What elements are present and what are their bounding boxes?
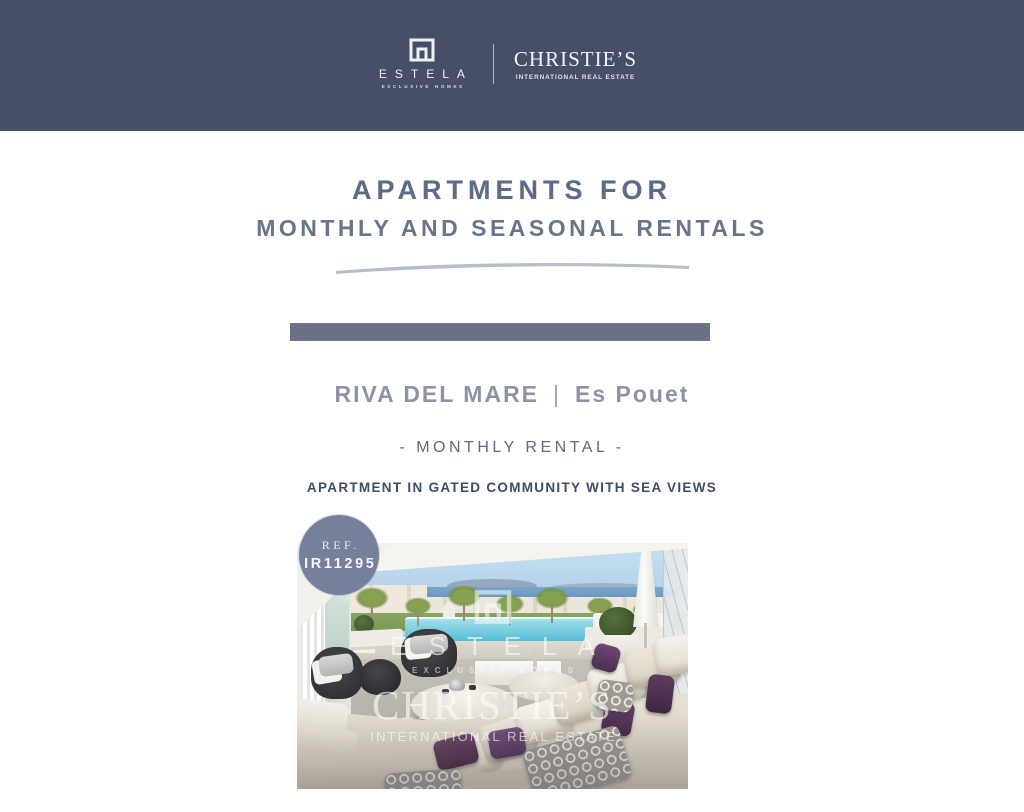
estela-house-icon [409, 38, 435, 62]
christies-tagline: INTERNATIONAL REAL ESTATE [516, 74, 635, 81]
listing-headline: APARTMENT IN GATED COMMUNITY WITH SEA VI… [0, 480, 1024, 495]
header-band: ESTELA EXCLUSIVE HOMES CHRISTIE’S INTERN… [0, 0, 1024, 131]
hero-section: APARTMENTS FOR MONTHLY AND SEASONAL RENT… [0, 131, 1024, 274]
ref-number: IR11295 [302, 556, 377, 572]
page-title-line1: APARTMENTS FOR [0, 175, 1024, 206]
property-title: RIVA DEL MARE|Es Pouet [0, 381, 1024, 408]
page: ESTELA EXCLUSIVE HOMES CHRISTIE’S INTERN… [0, 0, 1024, 812]
page-title-line2: MONTHLY AND SEASONAL RENTALS [0, 215, 1024, 242]
brand-lockup: ESTELA EXCLUSIVE HOMES CHRISTIE’S INTERN… [371, 38, 637, 89]
property-title-separator: | [539, 381, 575, 407]
title-underline-swoosh [334, 258, 691, 274]
section-divider-bar [290, 323, 710, 341]
property-location: Es Pouet [575, 381, 689, 407]
property-name: RIVA DEL MARE [335, 381, 539, 407]
christies-wordmark: CHRISTIE’S [514, 47, 637, 72]
brand-divider [493, 44, 494, 84]
ref-label: REF. [318, 538, 360, 553]
christies-logo: CHRISTIE’S INTERNATIONAL REAL ESTATE [514, 47, 637, 81]
estela-wordmark: ESTELA [371, 67, 473, 81]
property-photo-wrap: REF. IR11295 [297, 543, 688, 789]
estela-tagline: EXCLUSIVE HOMES [379, 84, 465, 89]
estela-logo: ESTELA EXCLUSIVE HOMES [371, 38, 473, 89]
rental-type-label: - MONTHLY RENTAL - [0, 439, 1024, 457]
ref-badge: REF. IR11295 [299, 515, 379, 595]
